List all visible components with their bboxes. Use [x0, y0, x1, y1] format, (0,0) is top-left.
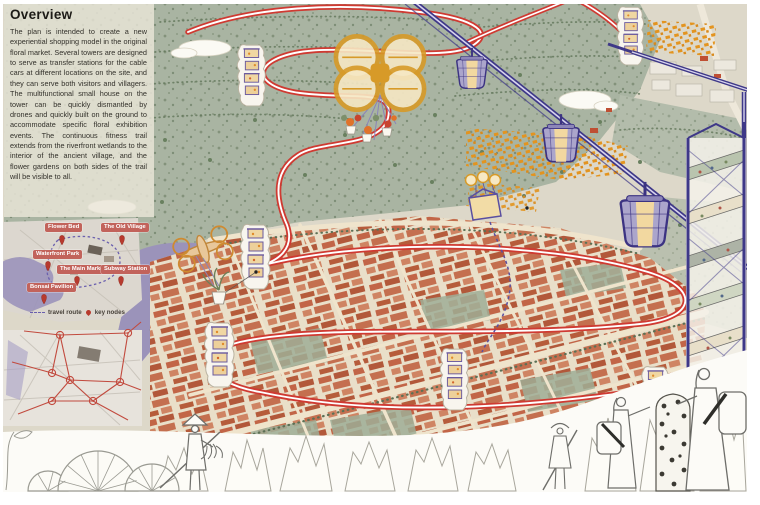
map-label-waterfront-park: Waterfront Park: [33, 250, 82, 259]
map-label-flower-bed: Flower Bed: [45, 223, 82, 232]
overview-body-text: The plan is intended to create a new exp…: [10, 27, 147, 182]
map-label-bonsai-pavilion: Bonsai Pavilion: [27, 283, 76, 292]
travel-route-icon: [30, 312, 45, 313]
key-node-pin-icon: [85, 309, 92, 316]
map-label-subway-station: Subway Station: [101, 265, 150, 274]
context-map-network: [2, 322, 142, 426]
overview-panel: Overview The plan is intended to create …: [10, 7, 147, 182]
legend-route-label: travel route: [48, 309, 82, 316]
masterplan-board: Overview The plan is intended to create …: [0, 0, 760, 505]
map-label-old-village: The Old Village: [101, 223, 149, 232]
legend-nodes-label: key nodes: [95, 309, 125, 316]
page-title: Overview: [10, 7, 147, 22]
map-legend: travel route key nodes: [30, 309, 125, 316]
